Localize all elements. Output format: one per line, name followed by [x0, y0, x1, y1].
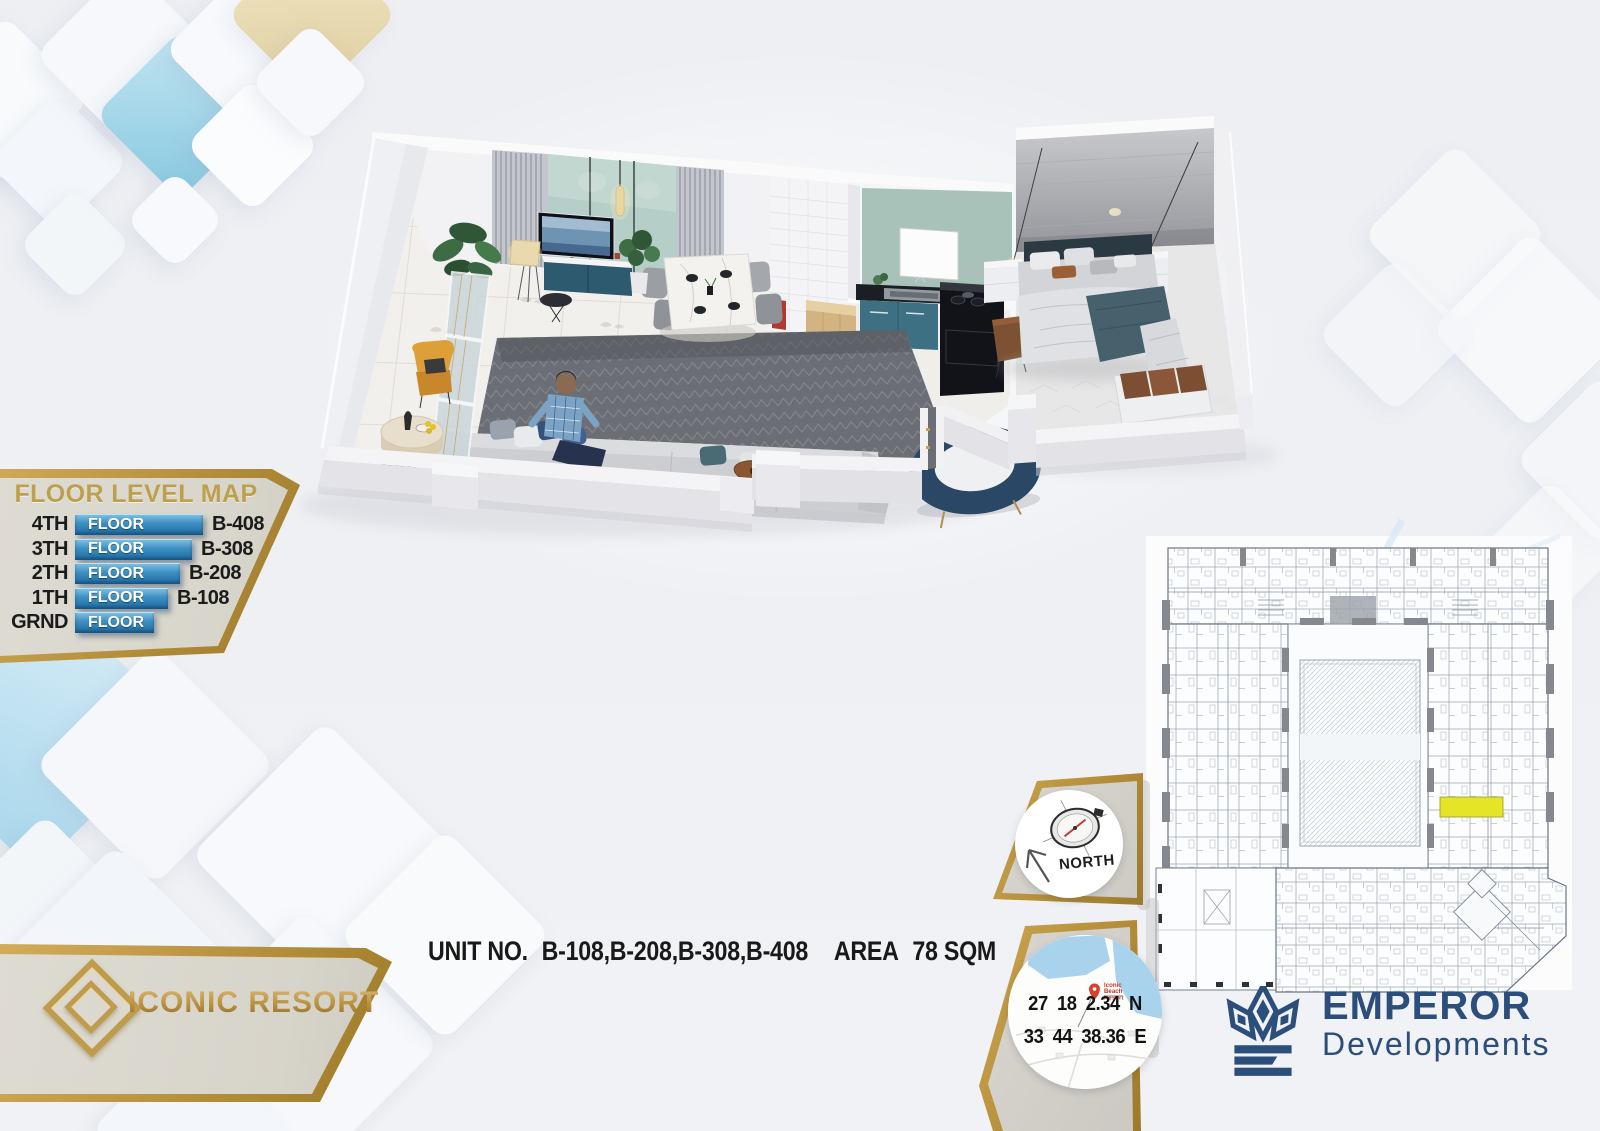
tv: [538, 212, 614, 260]
highlighted-unit: [1440, 797, 1503, 817]
compass-icon: [1015, 790, 1123, 898]
site-plan: [1137, 520, 1572, 1058]
coordinates-line-1: 27 18 2.34 N: [1014, 993, 1156, 1016]
floor-unit-label: B-208: [189, 562, 241, 585]
developer-logo: EMPEROR Developments: [1218, 986, 1551, 1082]
floor-level-map-title: FLOOR LEVEL MAP: [14, 480, 258, 509]
location-map-panel: Iconic Beach Resort 27 18 2.34 N 33 44 3…: [975, 918, 1175, 1131]
apartment-3d-render: [300, 116, 1280, 537]
bathroom: [770, 164, 860, 354]
floor-row: 2TH FLOOR B-208: [6, 563, 264, 584]
brand-name: ICONIC RESORT: [128, 986, 379, 1020]
crown-e-icon: [1218, 986, 1308, 1082]
floor-bar: FLOOR: [75, 514, 203, 535]
floor-level-label: 2TH: [6, 562, 68, 585]
floor-level-label: 1TH: [6, 587, 68, 610]
floor-level-label: GRND: [6, 611, 68, 634]
slippers: [1214, 397, 1230, 404]
unit-label: UNIT NO.: [428, 936, 528, 967]
brochure-page: FLOOR LEVEL MAP 4TH FLOOR B-408 3TH FLOO…: [0, 0, 1600, 1131]
coordinates-line-2: 33 44 38.36 E: [1014, 1026, 1156, 1049]
floor-bar: FLOOR: [75, 588, 168, 609]
floor-bar: FLOOR: [75, 612, 154, 633]
floor-unit-label: B-308: [201, 538, 253, 561]
floor-row: 3TH FLOOR B-308: [6, 539, 264, 560]
brand-panel: ICONIC RESORT: [0, 940, 400, 1131]
floor-level-map-panel: FLOOR LEVEL MAP 4TH FLOOR B-408 3TH FLOO…: [0, 463, 316, 668]
floor-unit-label: B-408: [212, 513, 264, 536]
floor-row: GRND FLOOR: [6, 612, 264, 633]
plan-bottom-wing: [1276, 868, 1566, 992]
floor-level-rows: 4TH FLOOR B-408 3TH FLOOR B-308 2TH FLOO…: [6, 514, 264, 637]
map-circle: Iconic Beach Resort 27 18 2.34 N 33 44 3…: [1008, 935, 1162, 1089]
unit-info-banner: UNIT NO. B-108,B-208,B-308,B-408 AREA 78…: [428, 936, 996, 967]
area-label: AREA: [834, 936, 899, 967]
kitchen-window: [900, 228, 958, 280]
entry-door: [920, 406, 944, 470]
nightstand: [984, 259, 1022, 303]
floor-bar: FLOOR: [75, 563, 180, 584]
compass-panel: NORTH: [985, 765, 1155, 913]
north-arrow-icon: [1027, 850, 1049, 882]
compass-circle: NORTH: [1015, 790, 1123, 898]
panel-body: [0, 940, 400, 1131]
floor-bar: FLOOR: [75, 539, 192, 560]
unit-numbers: B-108,B-208,B-308,B-408: [542, 936, 808, 967]
floor-unit-label: B-108: [177, 587, 229, 610]
floor-level-label: 4TH: [6, 513, 68, 536]
floor-row: 1TH FLOOR B-108: [6, 588, 264, 609]
developer-name: EMPEROR: [1322, 986, 1551, 1026]
developer-tagline: Developments: [1322, 1028, 1551, 1060]
floor-level-label: 3TH: [6, 538, 68, 561]
floor-row: 4TH FLOOR B-408: [6, 514, 264, 535]
